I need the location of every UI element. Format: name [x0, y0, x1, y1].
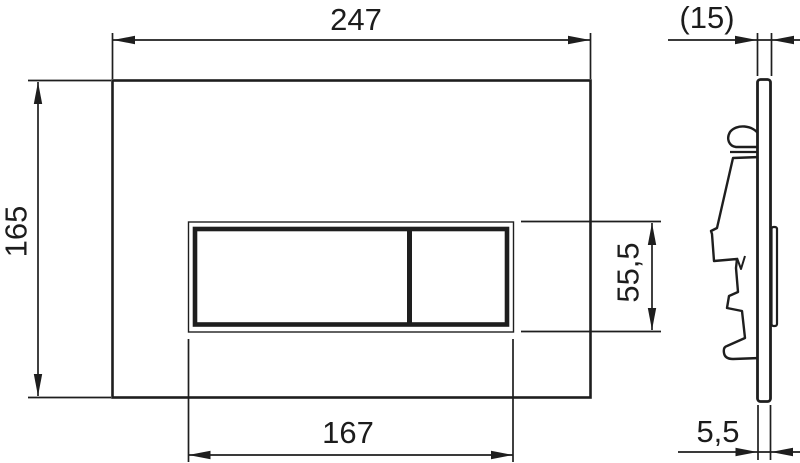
side-clip-ear — [728, 126, 760, 147]
dim-plate-width — [113, 33, 591, 79]
dim-depth — [668, 33, 800, 76]
side-clip-lever — [711, 157, 760, 359]
plate-height-label: 165 — [0, 177, 35, 287]
side-rear-tab — [772, 227, 778, 326]
thickness-label: 5,5 — [663, 413, 773, 450]
plate-width-label: 247 — [301, 1, 411, 38]
button-width-label: 167 — [293, 414, 403, 451]
front-view — [113, 81, 591, 398]
technical-drawing-canvas: 247 (15) 165 55,5 167 5,5 — [0, 0, 800, 463]
dim-plate-height — [28, 81, 111, 398]
depth-label: (15) — [652, 0, 762, 36]
drawing-linework — [0, 0, 800, 463]
side-plate-profile — [758, 80, 771, 402]
button-height-label: 55,5 — [610, 218, 647, 328]
plate-outline — [113, 81, 591, 398]
side-view — [711, 80, 777, 402]
